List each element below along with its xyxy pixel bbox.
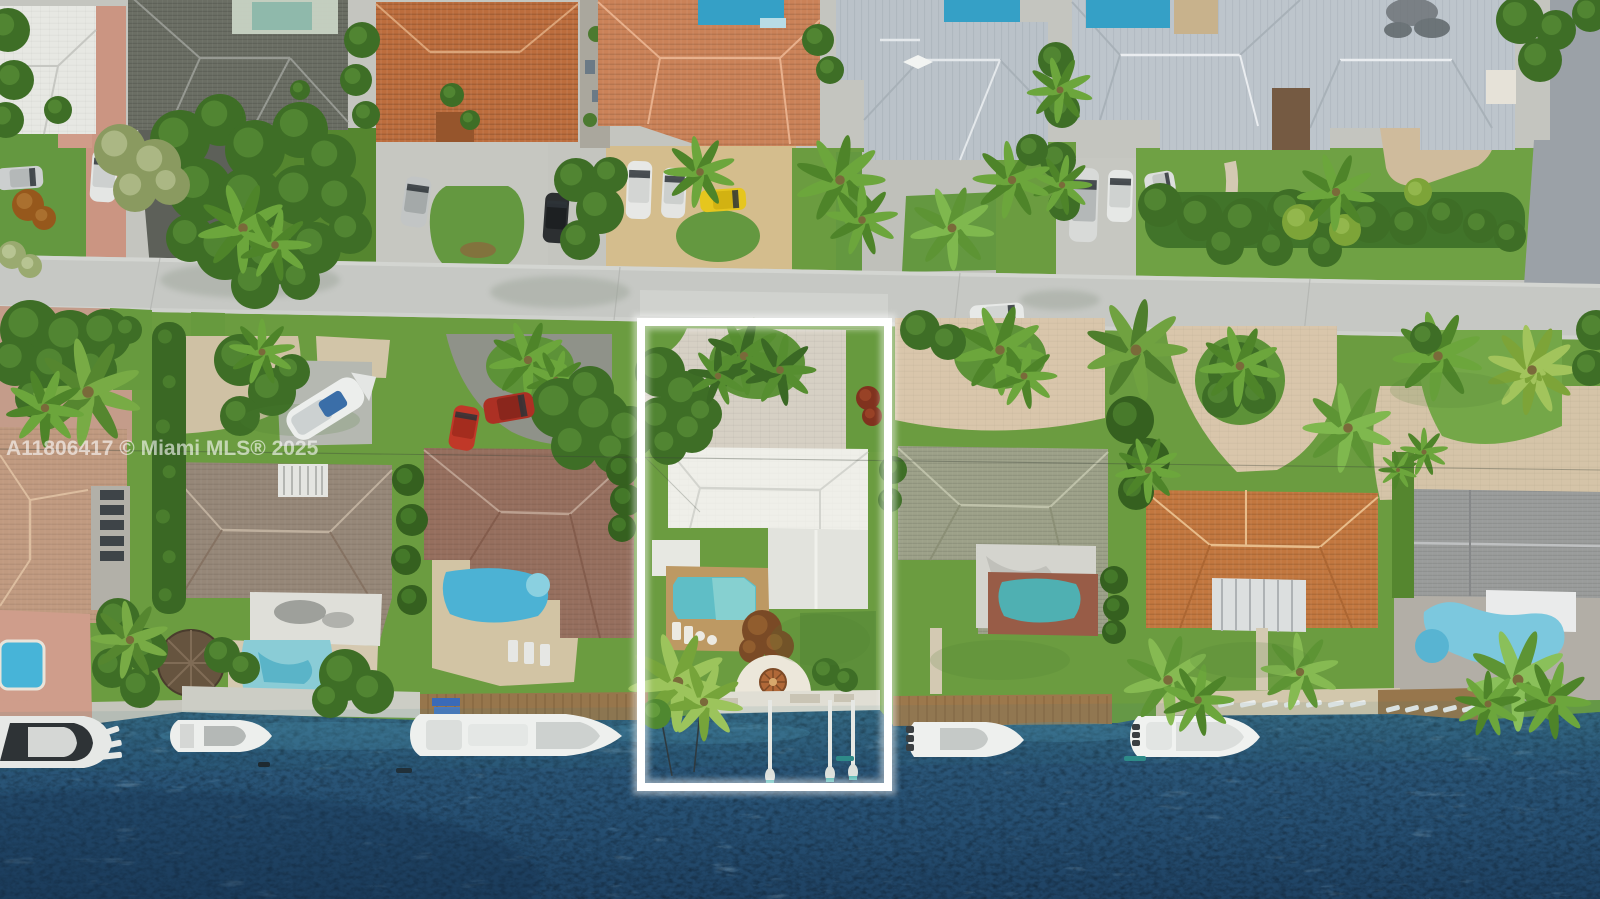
svg-text:A11806417 © Miami MLS® 2025: A11806417 © Miami MLS® 2025	[6, 437, 319, 460]
